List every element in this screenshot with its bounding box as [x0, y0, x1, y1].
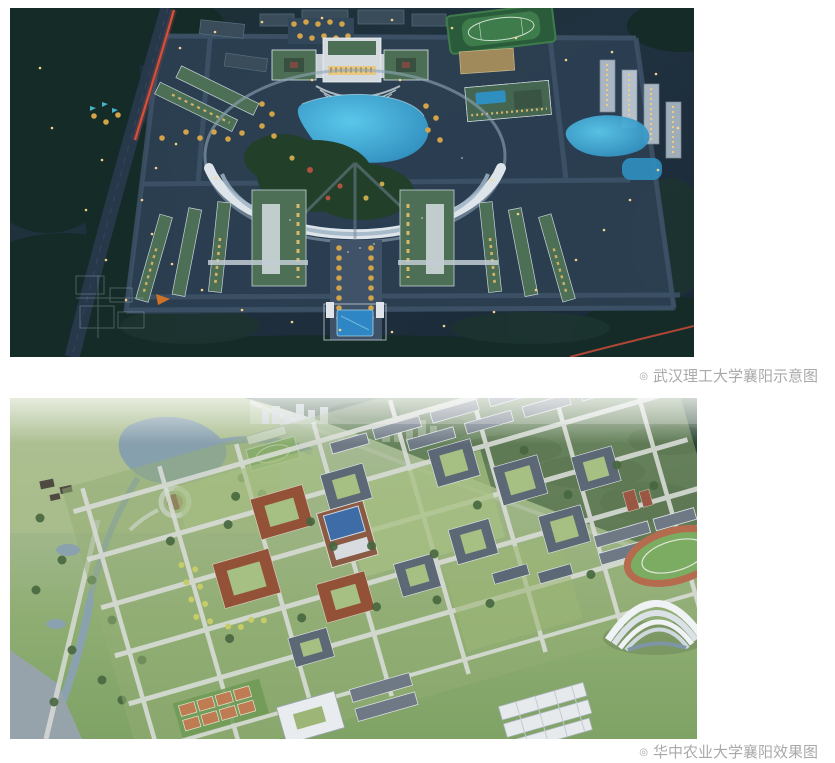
- campus-day-render-image[interactable]: [10, 398, 697, 739]
- image-caption-night: ◎武汉理工大学襄阳示意图: [639, 368, 818, 387]
- caption-text: 武汉理工大学襄阳示意图: [653, 368, 818, 385]
- caption-text: 华中农业大学襄阳效果图: [653, 744, 818, 761]
- night-aerial-illustration: [10, 8, 694, 357]
- caption-marker-icon: ◎: [639, 371, 648, 382]
- article-page: ◎武汉理工大学襄阳示意图: [0, 0, 835, 763]
- image-caption-day: ◎华中农业大学襄阳效果图: [639, 744, 818, 763]
- caption-marker-icon: ◎: [639, 747, 648, 758]
- campus-night-render-image[interactable]: [10, 8, 694, 357]
- day-aerial-illustration: [10, 398, 697, 739]
